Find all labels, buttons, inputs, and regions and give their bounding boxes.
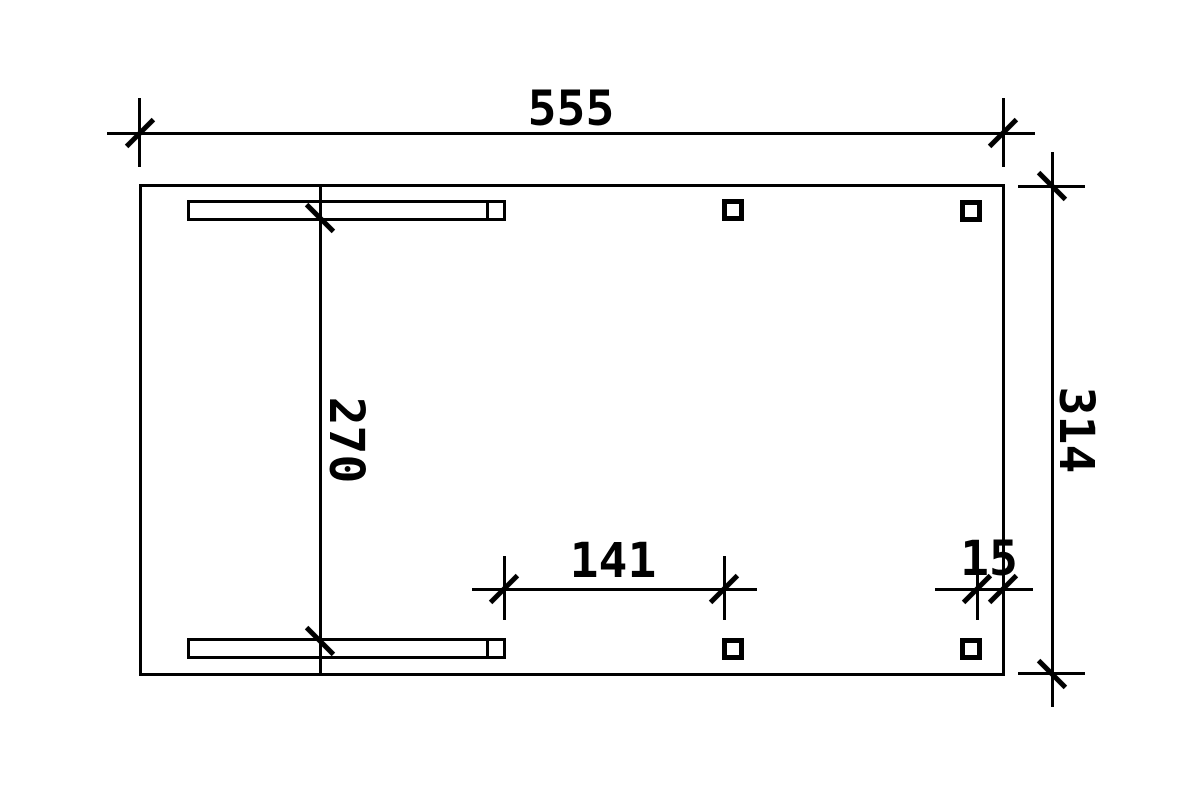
top-beam bbox=[187, 200, 506, 221]
post-top-right bbox=[960, 200, 982, 222]
bottom-beam bbox=[187, 638, 506, 659]
dim-label-total-depth: 314 bbox=[1052, 387, 1100, 474]
dim-label-inner-depth: 270 bbox=[322, 397, 370, 484]
post-top-middle bbox=[722, 199, 744, 221]
dim-label-total-width: 555 bbox=[528, 85, 615, 133]
plan-outline bbox=[139, 184, 1005, 676]
post-bottom-right bbox=[960, 638, 982, 660]
dim-label-edge-offset: 15 bbox=[960, 535, 1018, 583]
post-bottom-middle bbox=[722, 638, 744, 660]
floor-plan-drawing: 555 314 270 141 15 bbox=[0, 0, 1200, 800]
bottom-beam-end-post bbox=[486, 638, 506, 659]
dim-line bbox=[935, 588, 1033, 591]
top-beam-end-post bbox=[486, 200, 506, 221]
dim-label-post-spacing: 141 bbox=[570, 537, 657, 585]
